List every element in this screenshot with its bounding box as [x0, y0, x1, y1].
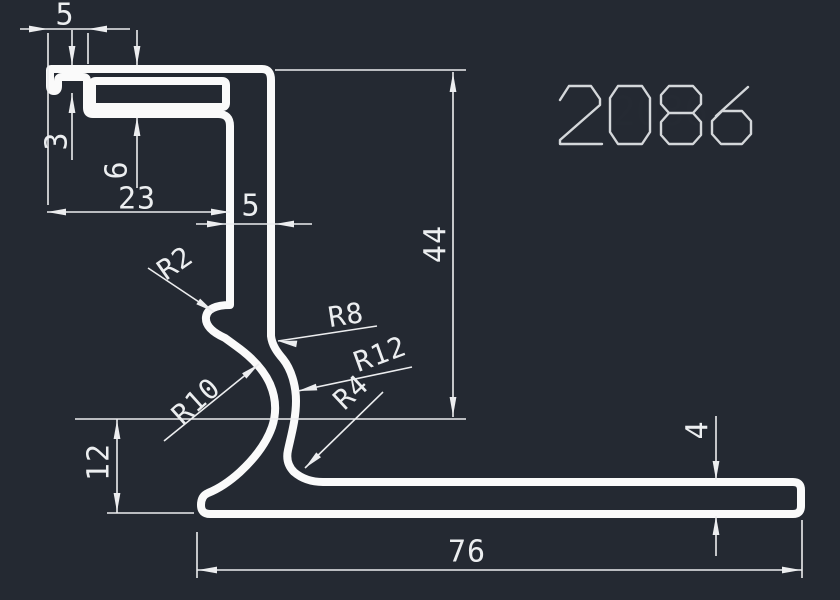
radius-label-r8: R8	[326, 296, 366, 334]
dim-foot-height: 12	[82, 443, 117, 481]
dim-base-thickness: 4	[681, 420, 716, 439]
part-number-text: 2086	[612, 89, 708, 135]
dim-step-depth: 6	[100, 160, 135, 179]
dim-overall-height: 44	[419, 225, 454, 263]
dim-lip-depth: 3	[40, 131, 75, 150]
cad-drawing-canvas[interactable]: 5 3 6 23 5 44 12 4 76 R2 R8 R12 R10 R4 2…	[0, 0, 840, 600]
dim-base-width: 76	[448, 535, 486, 570]
dim-wall-thickness: 5	[241, 189, 260, 224]
dim-top-lip-width: 5	[55, 0, 74, 33]
dim-top-offset: 23	[118, 182, 156, 217]
profile-drawing: 5 3 6 23 5 44 12 4 76 R2 R8 R12 R10 R4 2…	[0, 0, 840, 600]
